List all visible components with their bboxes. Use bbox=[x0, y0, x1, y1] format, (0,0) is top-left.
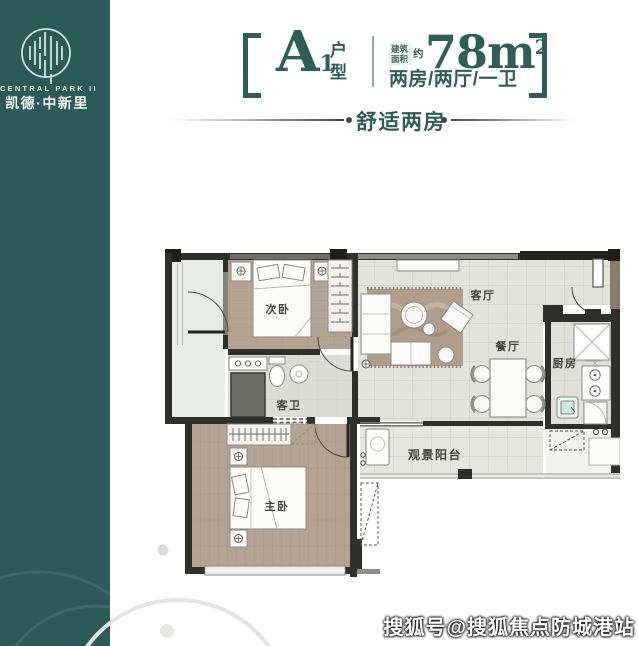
master-bay-window bbox=[205, 566, 345, 575]
brand-sidebar: CENTRAL PARK II 凯德·中新里 bbox=[0, 0, 110, 646]
room-label-dining: 餐厅 bbox=[495, 339, 521, 353]
layout-spec: 两房/两厅/一卫 bbox=[389, 64, 518, 91]
tagline-dot-right bbox=[441, 117, 447, 123]
room-label-bedroom2: 次卧 bbox=[266, 302, 291, 316]
room-label-guest-bath: 客卫 bbox=[276, 398, 302, 412]
unit-name: A1 bbox=[276, 22, 335, 94]
room-label-master: 主卧 bbox=[265, 499, 290, 513]
unit-word: 户型 bbox=[330, 40, 348, 84]
watermark: 搜狐号@搜狐焦点防城港站 bbox=[383, 611, 635, 640]
tagline: 舒适两房 bbox=[356, 106, 446, 136]
tagline-dot-left bbox=[346, 117, 352, 123]
header-divider bbox=[372, 36, 374, 87]
tagline-rule-right bbox=[451, 119, 575, 121]
area-approx: 约 bbox=[413, 46, 424, 61]
room-label-kitchen: 厨房 bbox=[553, 356, 578, 370]
area-label: 建筑面积 bbox=[389, 43, 412, 65]
page: { "sidebar": { "brand_en": "CENTRAL PARK… bbox=[0, 0, 638, 646]
room-label-living: 客厅 bbox=[470, 288, 496, 302]
bracket-left bbox=[243, 33, 261, 98]
floor-plan: 次卧 客卫 客厅 餐厅 厨房 主卧 观景阳台 bbox=[165, 247, 620, 584]
bracket-right bbox=[529, 33, 547, 98]
sidebar-decor-circles bbox=[0, 0, 110, 646]
tagline-rule-left bbox=[170, 119, 344, 121]
room-label-balcony: 观景阳台 bbox=[408, 447, 462, 462]
